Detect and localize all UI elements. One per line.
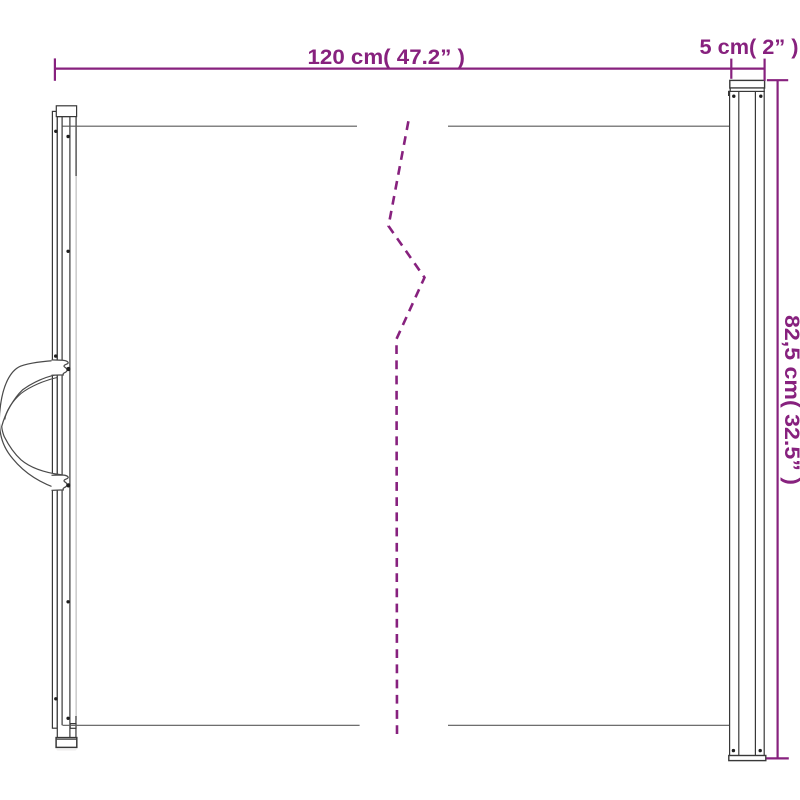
svg-text:5 cm( 2” ): 5 cm( 2” ) — [700, 36, 799, 59]
svg-text:120 cm( 47.2” ): 120 cm( 47.2” ) — [308, 46, 466, 69]
svg-text:82,5 cm( 32.5” ): 82,5 cm( 32.5” ) — [780, 315, 800, 485]
